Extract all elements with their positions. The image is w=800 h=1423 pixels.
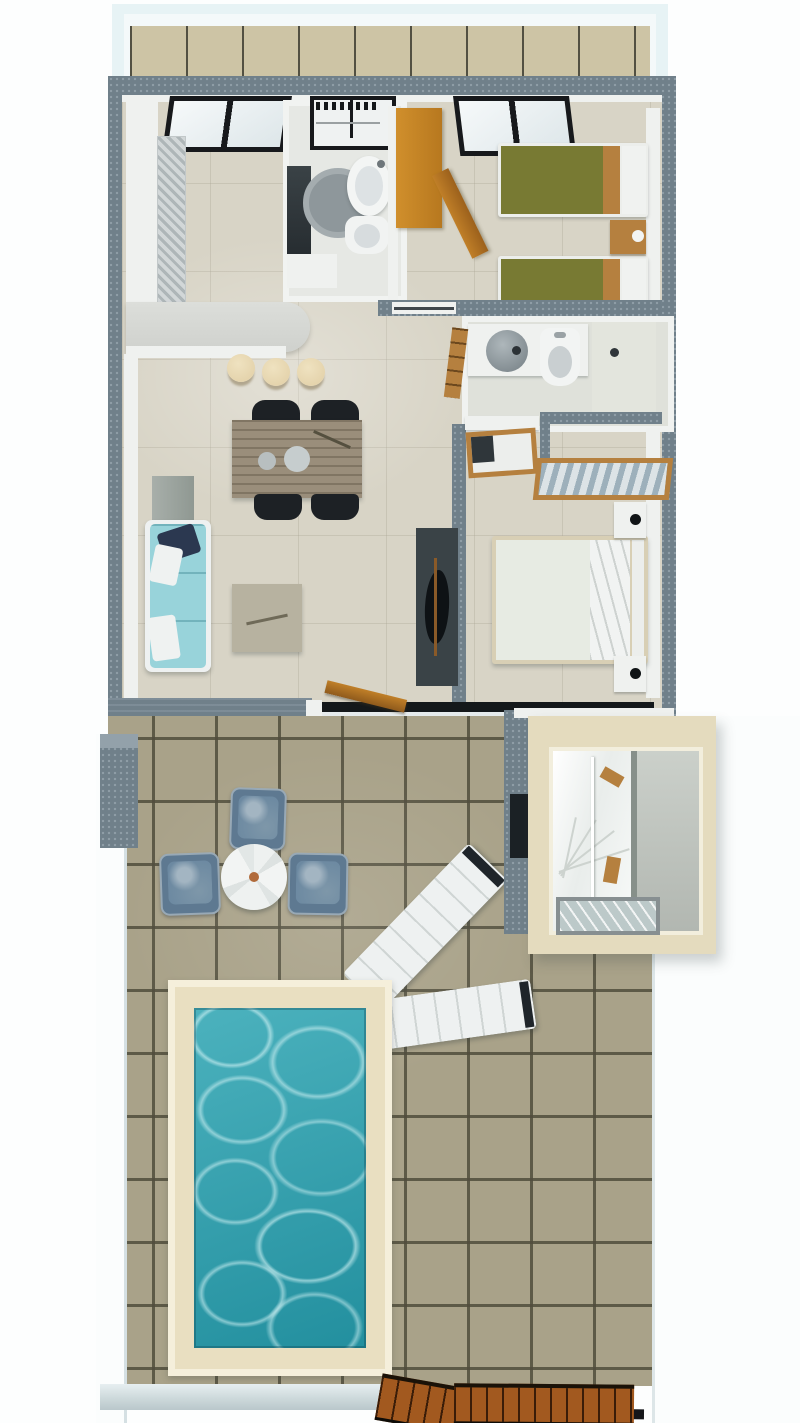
twin-room-right-lining [646, 108, 660, 302]
single-bed-1-headboard [603, 146, 620, 214]
stone-planter [100, 734, 138, 848]
table-teapot [284, 446, 310, 472]
living-left-lining [124, 354, 138, 700]
nightstand-lamp-2 [630, 668, 641, 679]
floor-plan-render [0, 0, 800, 1423]
master-nightstand-1 [614, 502, 646, 538]
double-bed-pillows [590, 540, 630, 660]
pool-water [194, 1008, 366, 1348]
stair-glass-floor [556, 897, 660, 935]
single-bed-2-mattress [501, 259, 603, 305]
table-branch [313, 430, 351, 449]
coffee-table-decor [246, 614, 288, 626]
sink-basin [355, 166, 383, 206]
bar-stool-1 [227, 354, 255, 382]
ensuite-vessel-sink [486, 330, 528, 372]
single-bed-1-shelf [622, 146, 646, 214]
washer-dryer [310, 96, 396, 150]
master-nightstand-2 [614, 656, 646, 692]
side-table [152, 476, 194, 520]
tv-wood-stick [434, 558, 437, 656]
stairwell-opening [549, 747, 703, 935]
single-bed-2-headboard [603, 259, 620, 305]
dining-chair-4 [311, 494, 359, 520]
armchair-cushion [167, 860, 212, 905]
washer-divider [350, 100, 353, 138]
planter-top [100, 734, 138, 748]
kitchen-breakfast-bar [126, 302, 310, 352]
single-bed-1 [498, 143, 648, 217]
wooden-gate-large [454, 1383, 634, 1423]
ensuite-tap [512, 346, 521, 355]
ensuite-toilet-bowl [548, 346, 572, 378]
sink-tap [377, 160, 385, 168]
dining-chair-3 [254, 494, 302, 520]
outdoor-armchair-top [229, 787, 287, 851]
toilet-bowl [354, 224, 380, 248]
armchair-cushion [237, 795, 278, 839]
kitchen-bar-front-edge [126, 346, 286, 358]
bar-stool-2 [262, 358, 290, 386]
single-bed-2-shelf [622, 259, 646, 305]
stairwell-cutaway [528, 716, 716, 954]
sofa-pillow-white-2 [147, 614, 181, 661]
outdoor-armchair-left [159, 852, 221, 916]
double-bed-headboard [632, 540, 644, 660]
chair-seat [471, 436, 495, 463]
shower-drain [610, 348, 619, 357]
bathroom-sink [347, 156, 391, 216]
twin-door-opening [392, 302, 456, 314]
bar-stool-3 [297, 358, 325, 386]
outdoor-armchair-right [287, 852, 348, 915]
twin-door-track [394, 307, 454, 310]
orange-wardrobe [396, 108, 442, 228]
ensuite-shower-floor [592, 322, 656, 414]
ensuite-toilet [540, 328, 580, 386]
stone-wall-niche [510, 794, 528, 858]
washer-lid-line [316, 122, 380, 124]
washer-controls [316, 102, 380, 110]
twin-nightstand-lamp [632, 230, 644, 242]
luggage-bench [533, 458, 673, 500]
sofa [145, 520, 211, 672]
dining-table [232, 420, 362, 498]
master-wooden-chair [465, 428, 538, 479]
table-cup [258, 452, 276, 470]
ensuite-toilet-button [554, 332, 566, 338]
round-side-table [221, 844, 287, 910]
terrace-bottom-band [100, 1384, 386, 1410]
tv-console [423, 569, 451, 644]
double-bed [492, 536, 648, 664]
armchair-cushion [296, 861, 341, 905]
double-bed-duvet [496, 540, 590, 660]
single-bed-1-mattress [501, 146, 603, 214]
twin-nightstand [610, 220, 646, 254]
coffee-table [232, 584, 302, 652]
tv-rug [416, 528, 458, 686]
nightstand-lamp-1 [630, 514, 641, 525]
bathroom-base-cabinet [287, 254, 337, 288]
bathroom-toilet [345, 216, 389, 254]
table-center-knot [249, 872, 259, 882]
ensuite-bottom-wall [540, 412, 662, 424]
